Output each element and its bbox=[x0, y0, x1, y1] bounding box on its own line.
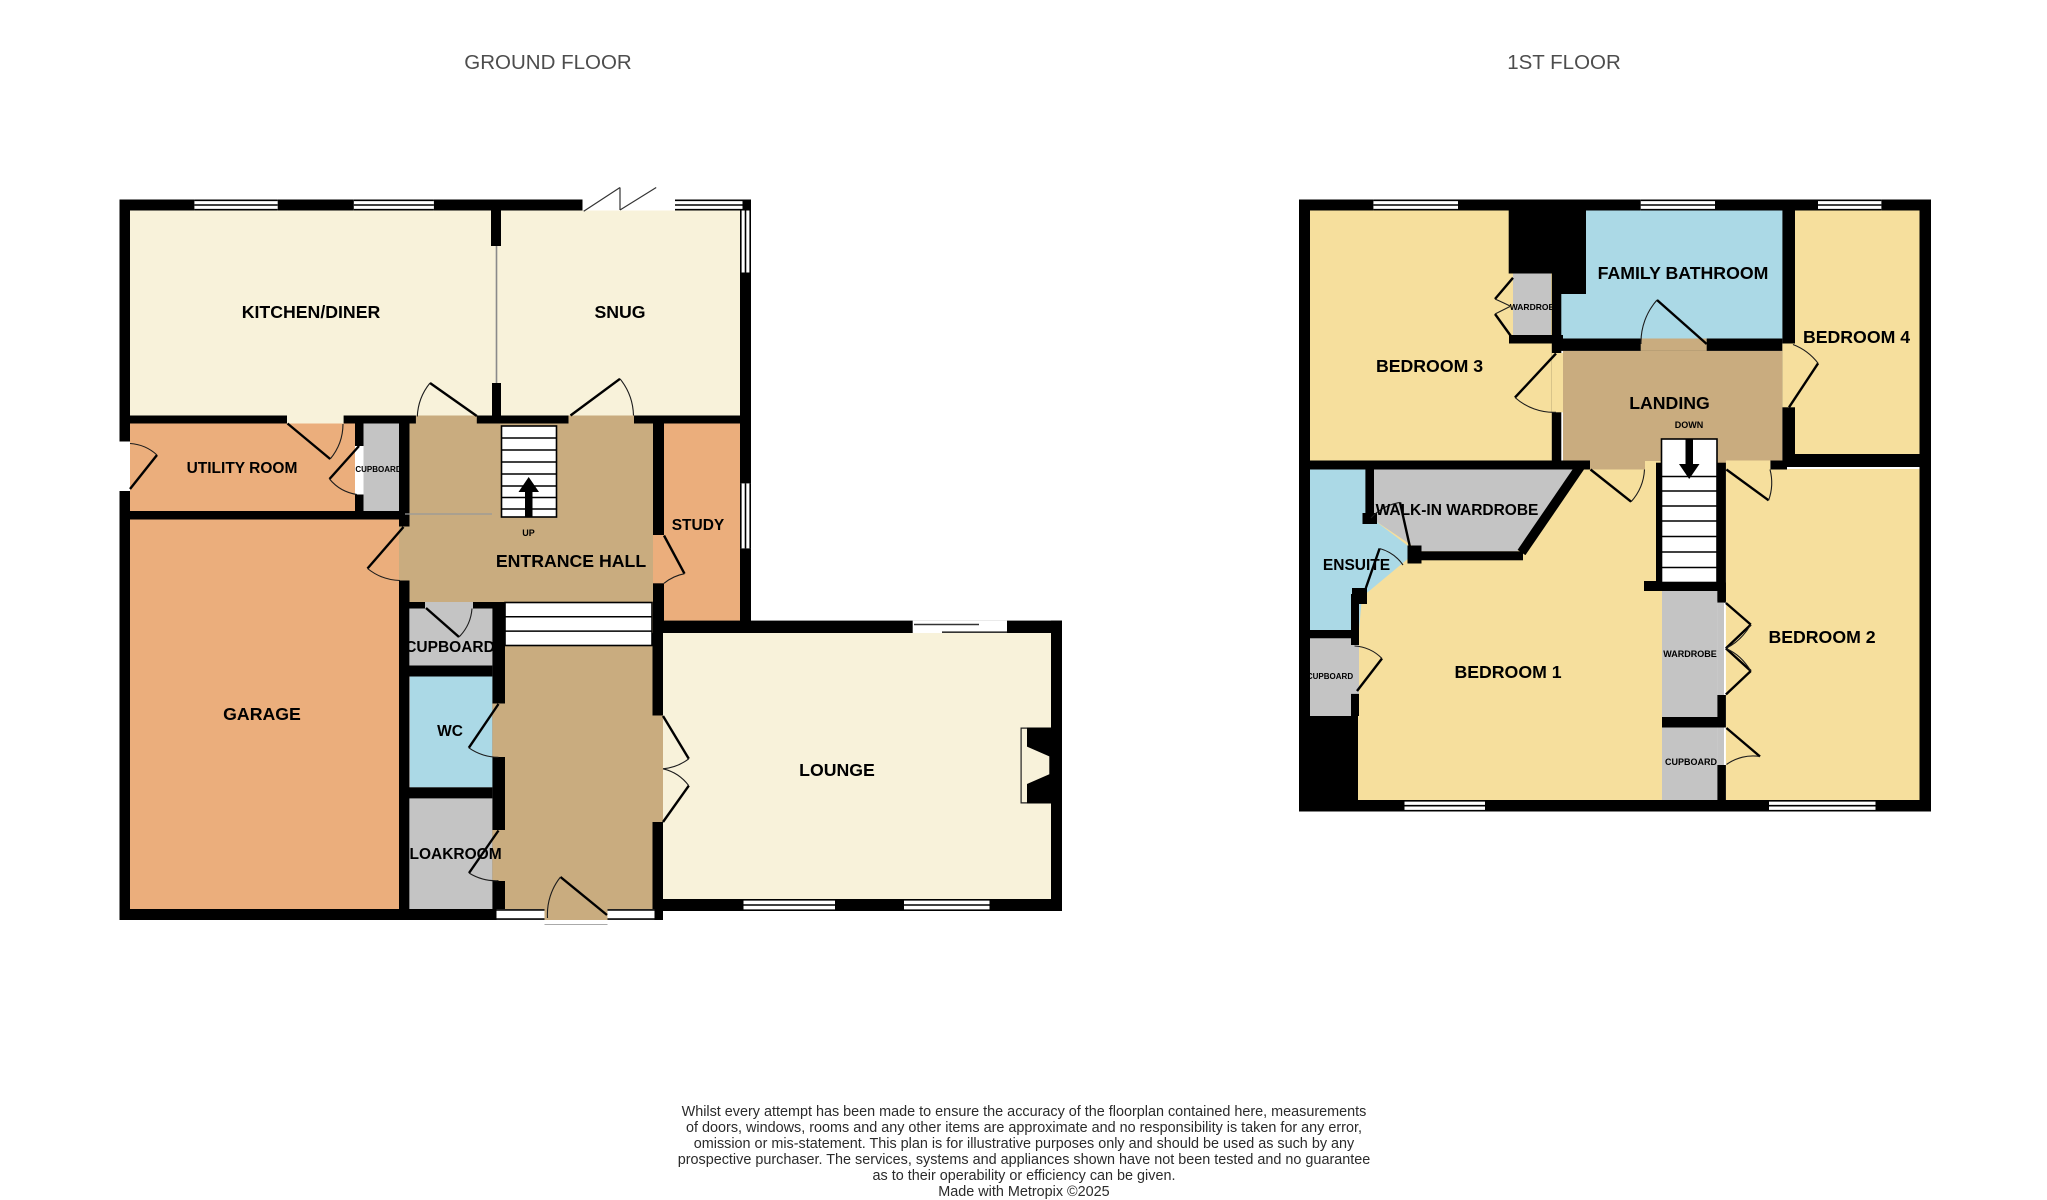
svg-text:WARDROBE: WARDROBE bbox=[1510, 302, 1561, 312]
svg-text:UTILITY ROOM: UTILITY ROOM bbox=[187, 460, 298, 477]
svg-text:ENTRANCE HALL: ENTRANCE HALL bbox=[496, 551, 647, 571]
svg-text:BEDROOM 4: BEDROOM 4 bbox=[1803, 327, 1910, 347]
svg-text:FAMILY BATHROOM: FAMILY BATHROOM bbox=[1598, 263, 1769, 283]
svg-text:BEDROOM 2: BEDROOM 2 bbox=[1768, 627, 1875, 647]
svg-text:Made with Metropix ©2025: Made with Metropix ©2025 bbox=[938, 1184, 1109, 1200]
svg-text:CLOAKROOM: CLOAKROOM bbox=[398, 846, 501, 863]
svg-text:omission or mis-statement. Thi: omission or mis-statement. This plan is … bbox=[694, 1136, 1355, 1152]
svg-text:CUPBOARD: CUPBOARD bbox=[405, 639, 495, 656]
svg-text:prospective purchaser. The ser: prospective purchaser. The services, sys… bbox=[678, 1152, 1371, 1168]
svg-text:KITCHEN/DINER: KITCHEN/DINER bbox=[242, 302, 381, 322]
svg-text:CUPBOARD: CUPBOARD bbox=[1665, 757, 1718, 767]
svg-text:DOWN: DOWN bbox=[1675, 420, 1704, 430]
svg-text:GARAGE: GARAGE bbox=[223, 704, 301, 724]
svg-text:UP: UP bbox=[522, 528, 535, 538]
svg-text:GROUND FLOOR: GROUND FLOOR bbox=[464, 51, 631, 74]
svg-text:STUDY: STUDY bbox=[672, 517, 725, 534]
svg-text:LANDING: LANDING bbox=[1629, 393, 1710, 413]
svg-text:CUPBOARD: CUPBOARD bbox=[355, 465, 401, 474]
svg-text:of doors, windows, rooms and a: of doors, windows, rooms and any other i… bbox=[686, 1120, 1362, 1136]
svg-text:ENSUITE: ENSUITE bbox=[1323, 557, 1390, 574]
svg-text:1ST FLOOR: 1ST FLOOR bbox=[1507, 51, 1621, 74]
svg-text:as to their operability or eff: as to their operability or efficiency ca… bbox=[873, 1168, 1176, 1184]
svg-text:LOUNGE: LOUNGE bbox=[799, 760, 875, 780]
svg-text:WARDROBE: WARDROBE bbox=[1663, 649, 1717, 659]
svg-text:Whilst every attempt has been: Whilst every attempt has been made to en… bbox=[682, 1104, 1367, 1120]
svg-text:SNUG: SNUG bbox=[594, 302, 645, 322]
svg-text:WC: WC bbox=[437, 723, 463, 740]
svg-text:CUPBOARD: CUPBOARD bbox=[1307, 672, 1353, 681]
svg-text:BEDROOM 1: BEDROOM 1 bbox=[1454, 662, 1561, 682]
svg-text:WALK-IN WARDROBE: WALK-IN WARDROBE bbox=[1376, 502, 1539, 519]
svg-text:BEDROOM 3: BEDROOM 3 bbox=[1376, 356, 1483, 376]
